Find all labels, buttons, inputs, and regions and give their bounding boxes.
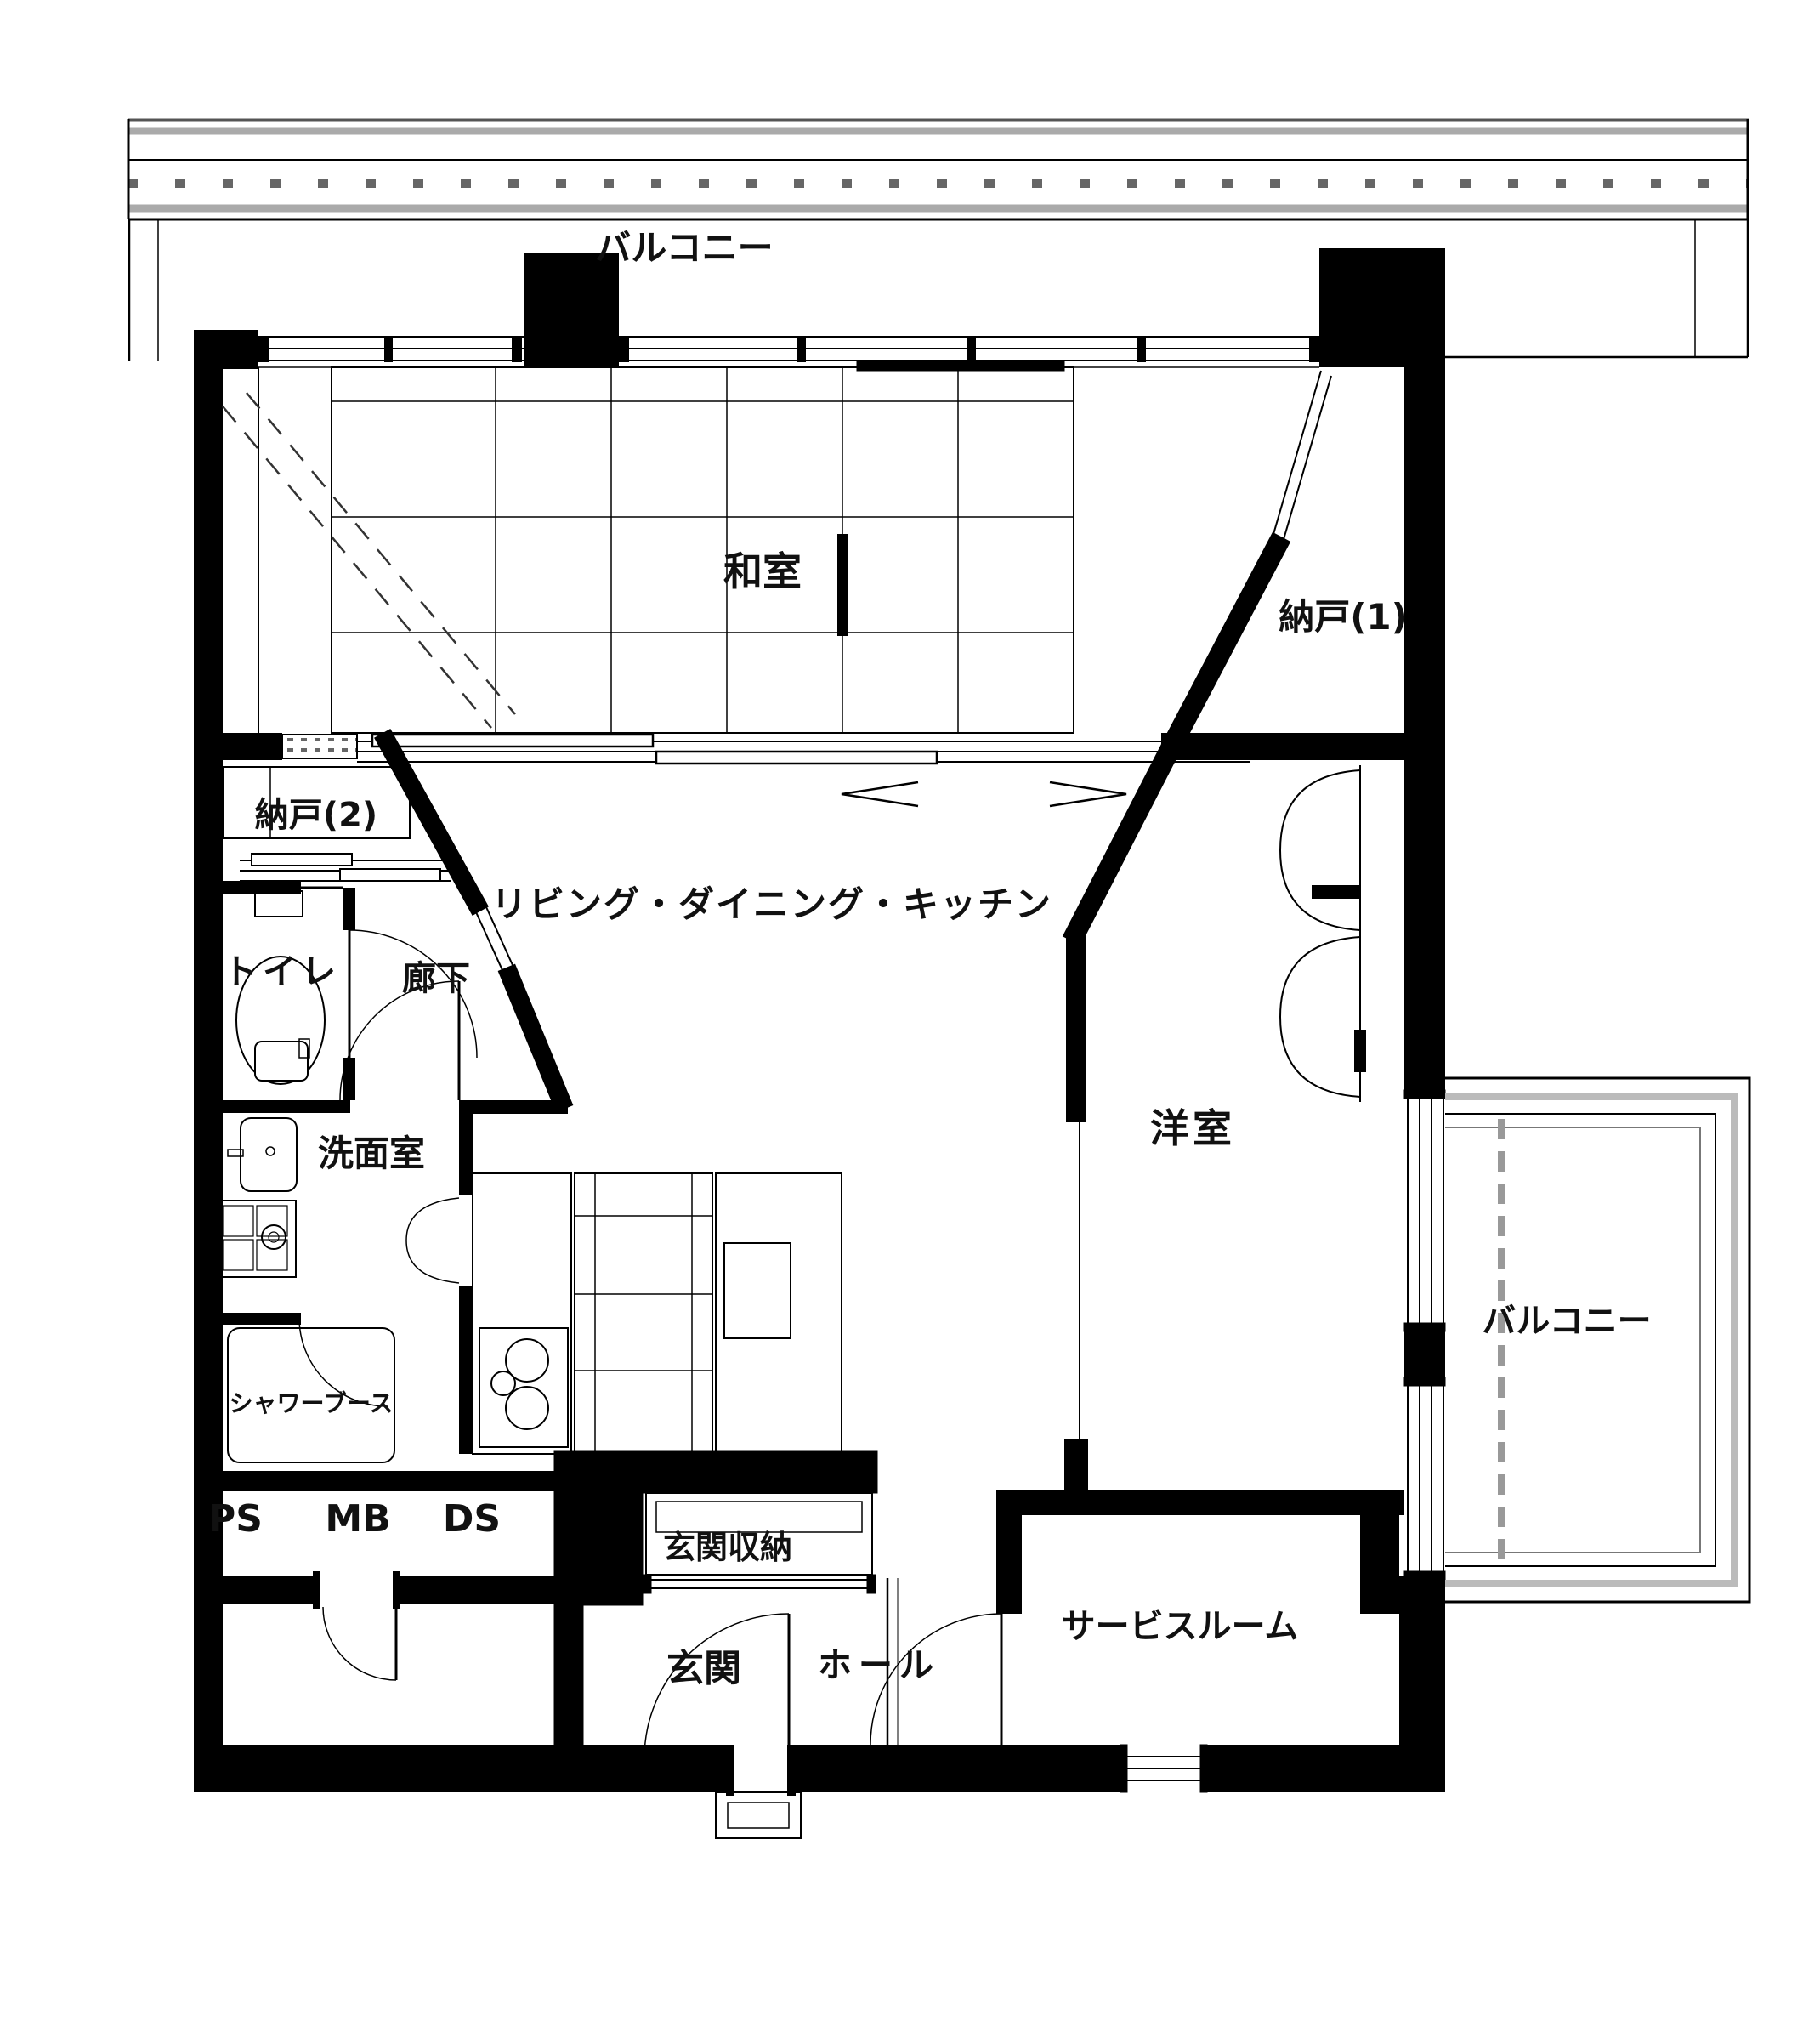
label-nando1: 納戸(1): [1279, 596, 1408, 638]
kitchen-sink-icon: [724, 1243, 791, 1338]
closet-dashed-diagonals: [223, 393, 515, 728]
nando1-walls: [1076, 371, 1416, 932]
label-genkan: 玄関: [666, 1647, 741, 1690]
label-mb: MB: [325, 1497, 390, 1541]
floor-plan-svg: バルコニー 和室 納戸(1) 納戸(2) トイレ 廊下 リビング・ダイニング・キ…: [0, 0, 1803, 2044]
label-balcony-right: バルコニー: [1482, 1302, 1651, 1341]
sliding-door-panel: [372, 735, 653, 747]
entrance-step: [716, 1792, 801, 1838]
slide-direction-arrow-right: [1050, 782, 1126, 806]
label-senmenshitsu: 洗面室: [318, 1133, 425, 1174]
washing-machine-pan-icon: [218, 1201, 296, 1277]
stove-burners-icon: [479, 1328, 568, 1447]
window-band-left: [258, 337, 524, 362]
label-ps: PS: [208, 1497, 263, 1541]
closet-double-doors: [1280, 765, 1365, 1102]
window-band-right: [619, 337, 1319, 362]
vanity-sink-icon: [228, 1118, 297, 1191]
service-room-window: [1120, 1745, 1207, 1792]
genkan-entrance: [644, 1578, 898, 1838]
door-swing-arc: [340, 981, 459, 1100]
outer-walls: [194, 248, 1445, 1792]
top-balcony-railing: [128, 119, 1749, 361]
label-genkan-storage: 玄関収納: [663, 1529, 792, 1566]
tatami-grid: [258, 361, 1074, 733]
label-washitsu: 和室: [723, 548, 802, 594]
label-toilet: トイレ: [224, 952, 341, 991]
label-corridor: 廊下: [402, 959, 470, 998]
door-swing-arc: [323, 1607, 396, 1680]
label-ldk: リビング・ダイニング・キッチン: [491, 883, 1052, 925]
top-wall-and-windows: [194, 248, 1420, 369]
sliding-door-panel: [656, 752, 937, 764]
label-balcony-top: バルコニー: [595, 227, 773, 269]
label-ds: DS: [443, 1497, 501, 1541]
kitchen: [473, 1173, 877, 1493]
double-door-arc: [406, 1198, 459, 1241]
youshitsu-walls: [1064, 932, 1088, 1491]
double-door-arc: [406, 1241, 459, 1283]
label-hall: ホール: [818, 1646, 940, 1685]
label-shower-booth: シャワーブース: [230, 1389, 394, 1417]
shower-booth: [223, 1313, 394, 1462]
label-nando2: 納戸(2): [255, 796, 377, 835]
label-service-room: サービスルーム: [1062, 1607, 1299, 1646]
label-youshitsu: 洋室: [1150, 1105, 1235, 1151]
slide-direction-arrow-left: [842, 782, 918, 806]
floor-plan-page: バルコニー 和室 納戸(1) 納戸(2) トイレ 廊下 リビング・ダイニング・キ…: [0, 0, 1803, 2044]
